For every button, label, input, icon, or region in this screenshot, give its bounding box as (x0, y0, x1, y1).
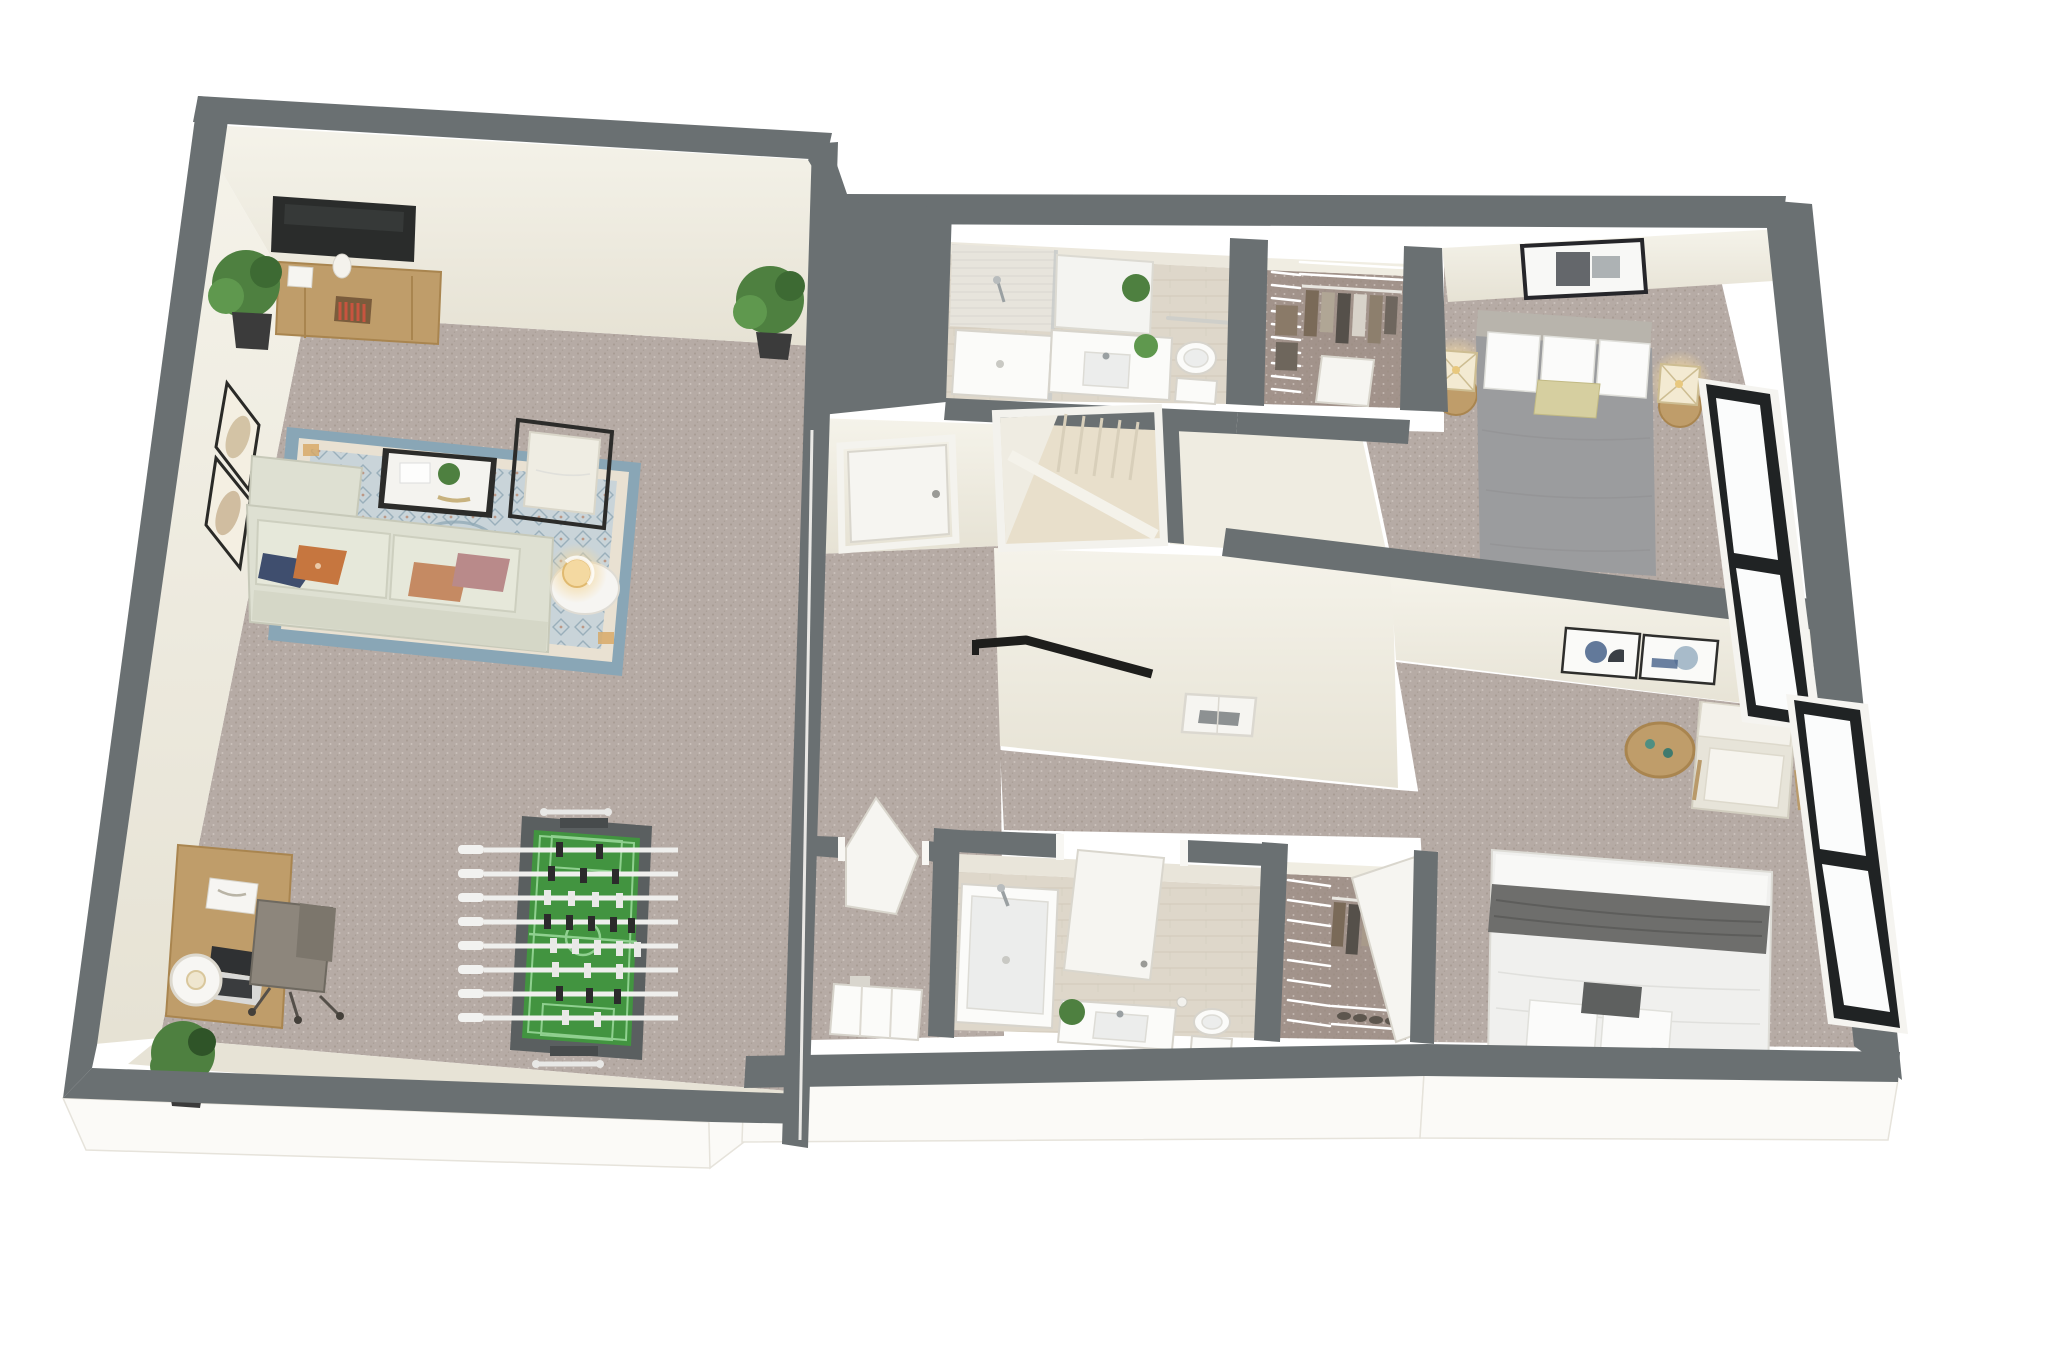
door-handle (932, 490, 940, 498)
console-vase (333, 254, 351, 278)
door-jamb (922, 841, 929, 865)
paper-holder (1177, 997, 1187, 1007)
bed1-pillow (1596, 340, 1650, 398)
table-lamp-right (1658, 364, 1700, 405)
door-jamb (1056, 834, 1064, 860)
goal-top (560, 818, 608, 828)
shower-drain (996, 360, 1004, 368)
closet1-bedroom1-divider (1400, 246, 1448, 412)
table-decor (1645, 739, 1655, 749)
art-motif (1592, 256, 1620, 278)
closet1-door-leaf (1316, 356, 1374, 406)
laundry-north-wall-left (814, 836, 842, 858)
door-jamb (838, 837, 845, 861)
bath2-north-wall-right (1184, 840, 1268, 866)
cabinet-items (850, 976, 870, 986)
table-tray (400, 463, 430, 483)
round-side-table (1626, 723, 1694, 777)
north-run-wall (845, 194, 1786, 228)
shower-valve (993, 276, 1001, 284)
bath-plant (1059, 999, 1085, 1025)
bath1-closet1-divider (1226, 238, 1268, 406)
floor-plan-render (0, 0, 2048, 1364)
accent-chair-cushion (524, 432, 600, 514)
bath-plant (1134, 334, 1158, 358)
floor-plan-svg (0, 0, 2048, 1364)
bed2-accent-pillow (1581, 982, 1642, 1018)
sink-faucet (1117, 1011, 1124, 1018)
console-frame-decor (288, 266, 313, 288)
goal-bottom (550, 1046, 598, 1056)
rug-accent (303, 444, 319, 456)
table-plant (438, 463, 460, 485)
bed1-pillow (1484, 332, 1540, 392)
door-jamb (1180, 840, 1188, 866)
handrail-post (972, 640, 979, 655)
bathtub-basin (967, 896, 1048, 1014)
shower-tile-lines (950, 244, 1056, 332)
door-handle (1141, 961, 1148, 968)
sink-faucet (1103, 353, 1110, 360)
desk-lamp-top (187, 971, 205, 989)
art-motif (1674, 646, 1698, 670)
art-motif (1585, 641, 1607, 663)
bathroom2-door-leaf (1064, 850, 1164, 980)
tub-valve (997, 884, 1005, 892)
bath-plant (1122, 274, 1150, 302)
toilet-seat (1202, 1015, 1222, 1029)
closet2-bedroom2-divider (1410, 850, 1438, 1044)
throw-pillow-mauve (452, 553, 510, 592)
rug-accent (598, 632, 614, 644)
toilet-seat (1184, 349, 1208, 367)
art-motif (1651, 658, 1678, 669)
bed1-accent-pillow (1534, 380, 1600, 418)
art-motif (1556, 252, 1590, 286)
bed2 (1488, 850, 1772, 1078)
toilet-tank (1175, 378, 1217, 404)
laundry-cabinet (830, 984, 922, 1040)
wall-chase-junction (812, 200, 952, 416)
table-decor (1663, 748, 1673, 758)
tub-drain (1002, 956, 1010, 964)
pillow-dot (315, 563, 321, 569)
